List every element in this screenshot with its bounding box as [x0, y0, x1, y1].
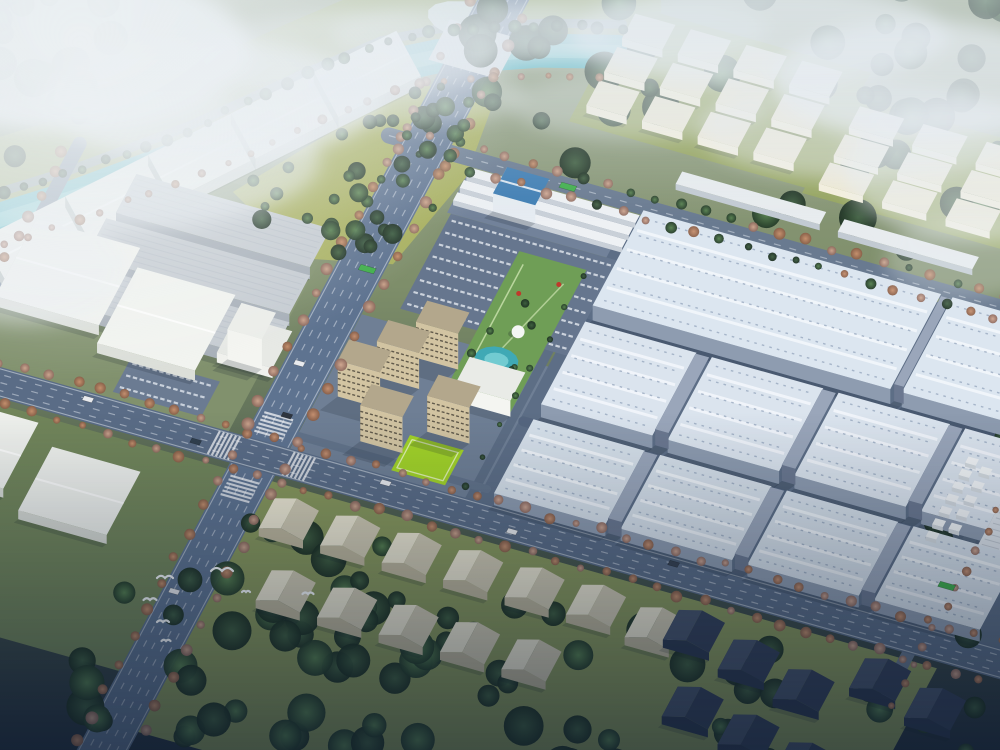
vignette-overlay [0, 0, 1000, 750]
aerial-render-frame [0, 0, 1000, 750]
scene-svg [0, 0, 1000, 750]
